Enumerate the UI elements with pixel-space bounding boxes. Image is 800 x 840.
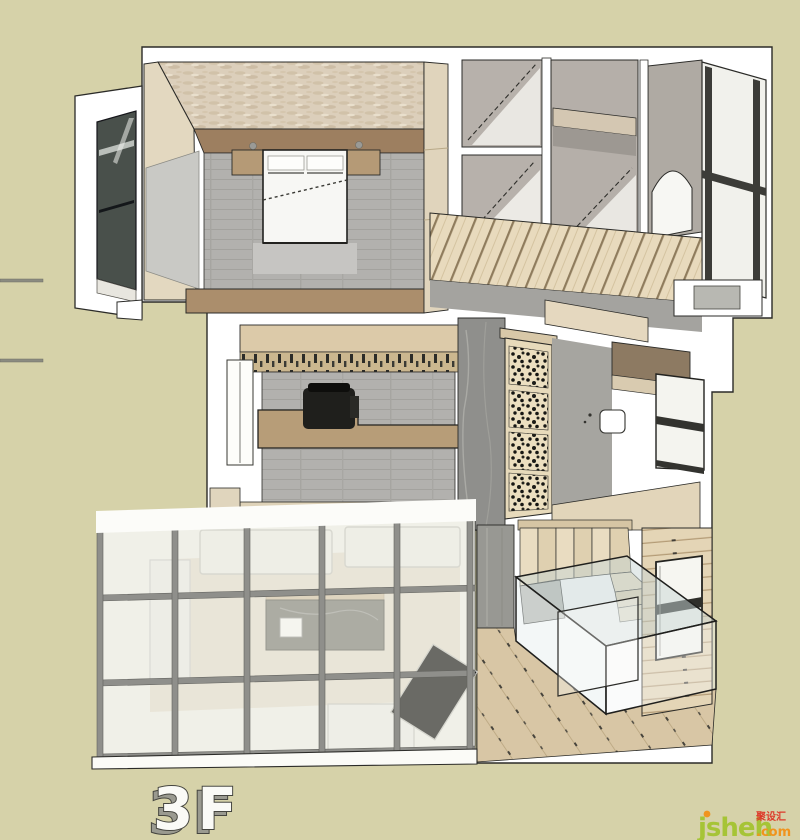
office-chair: [303, 383, 359, 429]
nightstand-left: [232, 150, 265, 175]
wall-sink: [600, 410, 625, 433]
bedroom-foot-wall: [186, 289, 424, 313]
watermark-cjk: 聚设汇: [755, 810, 786, 823]
right-window-bay: [674, 280, 762, 316]
floorplan-svg: 3F 3F jsheh 聚设汇 .com: [0, 0, 800, 840]
watermark: jsheh 聚设汇 .com: [697, 810, 791, 840]
floor-label-group: 3F 3F: [148, 775, 241, 840]
master-bedroom: [144, 62, 448, 313]
study-marble-wall: [458, 318, 505, 530]
stair-hall-room: [477, 520, 716, 762]
bedroom-ceiling-travertine: [158, 62, 424, 129]
study-cabinet-band: [240, 325, 480, 352]
nightstand-right: [345, 150, 380, 175]
floorplan-render: 3F 3F jsheh 聚设汇 .com: [0, 0, 800, 840]
hall-window: [656, 374, 704, 474]
sunroom-glass-haze: [100, 519, 475, 762]
wine-rack: [500, 328, 557, 519]
bed-pillow-left: [268, 156, 304, 170]
pendant-lamp-left: [250, 143, 257, 150]
bed: [263, 150, 347, 243]
glass-railing-inner: [558, 597, 638, 696]
bedroom-rug: [253, 243, 357, 274]
study-slat-ceiling: [240, 352, 465, 372]
stone-column: [477, 525, 514, 628]
watermark-dot-icon: [704, 811, 711, 818]
bay-window-glass: [97, 111, 136, 290]
bedroom-bay-window: [75, 86, 142, 320]
floor-label: 3F: [153, 775, 241, 840]
pendant-lamp-right: [356, 142, 363, 149]
bedroom-wardrobe-panel: [146, 151, 199, 289]
bathtub: [652, 171, 692, 238]
watermark-suffix: .com: [756, 825, 791, 840]
sunroom: [92, 499, 477, 769]
bed-pillow-right: [307, 156, 343, 170]
